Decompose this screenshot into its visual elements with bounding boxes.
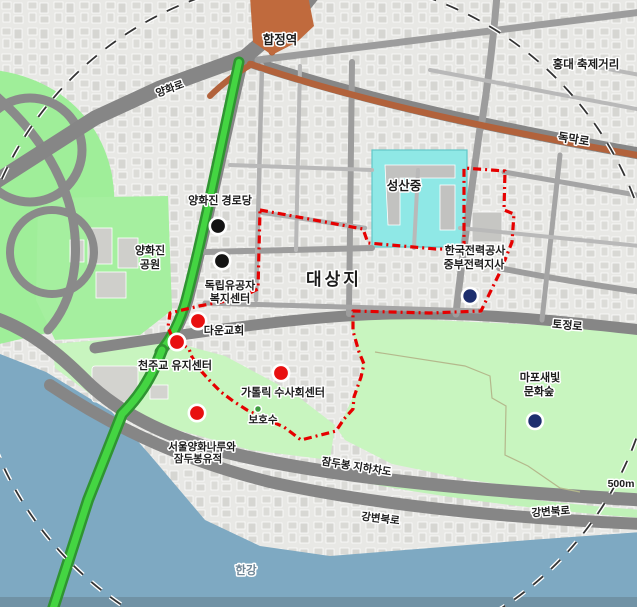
label-mapo-forest-line1: 마포새빛 [520,370,560,384]
site-location-map: 합정역 홍대 축제거리 양화로 독막로 성산중 한국전력공사 중부전력지사 대상… [0,0,637,607]
label-yanghwajin-park-line2: 공원 [140,257,160,271]
marker-navy-mapo-forest [527,413,543,429]
label-catholic-maintenance-center: 천주교 유지센터 [138,358,212,372]
marker-protected-tree [255,406,262,413]
label-independence-welfare-line1: 독립유공자 [205,278,256,292]
kepco-building [472,212,502,242]
label-seongsan-middle-school: 성산중 [387,178,422,193]
label-gangbyeon-expressway-east: 강변북로 [531,504,571,520]
label-yanghwanaru-line1: 서울양화나루와 [168,440,236,453]
marker-red-catholic-monastic [273,365,289,381]
label-han-river: 한강 [235,563,257,577]
marker-black-senior-center-1 [210,218,226,234]
map-svg: 합정역 홍대 축제거리 양화로 독막로 성산중 한국전력공사 중부전력지사 대상… [0,0,637,607]
label-yanghwanaru-line2: 잠두봉유적 [174,452,222,465]
label-catholic-monastic-center: 가톨릭 수사회센터 [241,385,325,399]
label-target-site: 대상지 [306,270,362,289]
label-hapjeong-station: 합정역 [263,32,298,47]
label-kepco-line2: 중부전력지사 [444,257,506,271]
label-kepco-line1: 한국전력공사 [445,243,507,257]
marker-red-yanghwanaru [189,405,205,421]
label-scale-500m: 500m [608,478,635,490]
label-mapo-forest-line2: 문화숲 [524,384,554,398]
label-yanghwajin-senior-center: 양화진 경로당 [188,193,252,207]
label-hongdae-festival-street: 홍대 축제거리 [553,57,620,71]
marker-black-senior-center-2 [214,253,230,269]
label-yanghwajin-park-line1: 양화진 [135,243,165,257]
marker-red-catholic-maintenance [169,334,185,350]
label-daun-church: 다운교회 [204,323,244,337]
marker-navy-kepco [462,288,478,304]
label-protected-tree: 보호수 [249,413,278,426]
label-independence-welfare-line2: 복지센터 [210,291,250,305]
